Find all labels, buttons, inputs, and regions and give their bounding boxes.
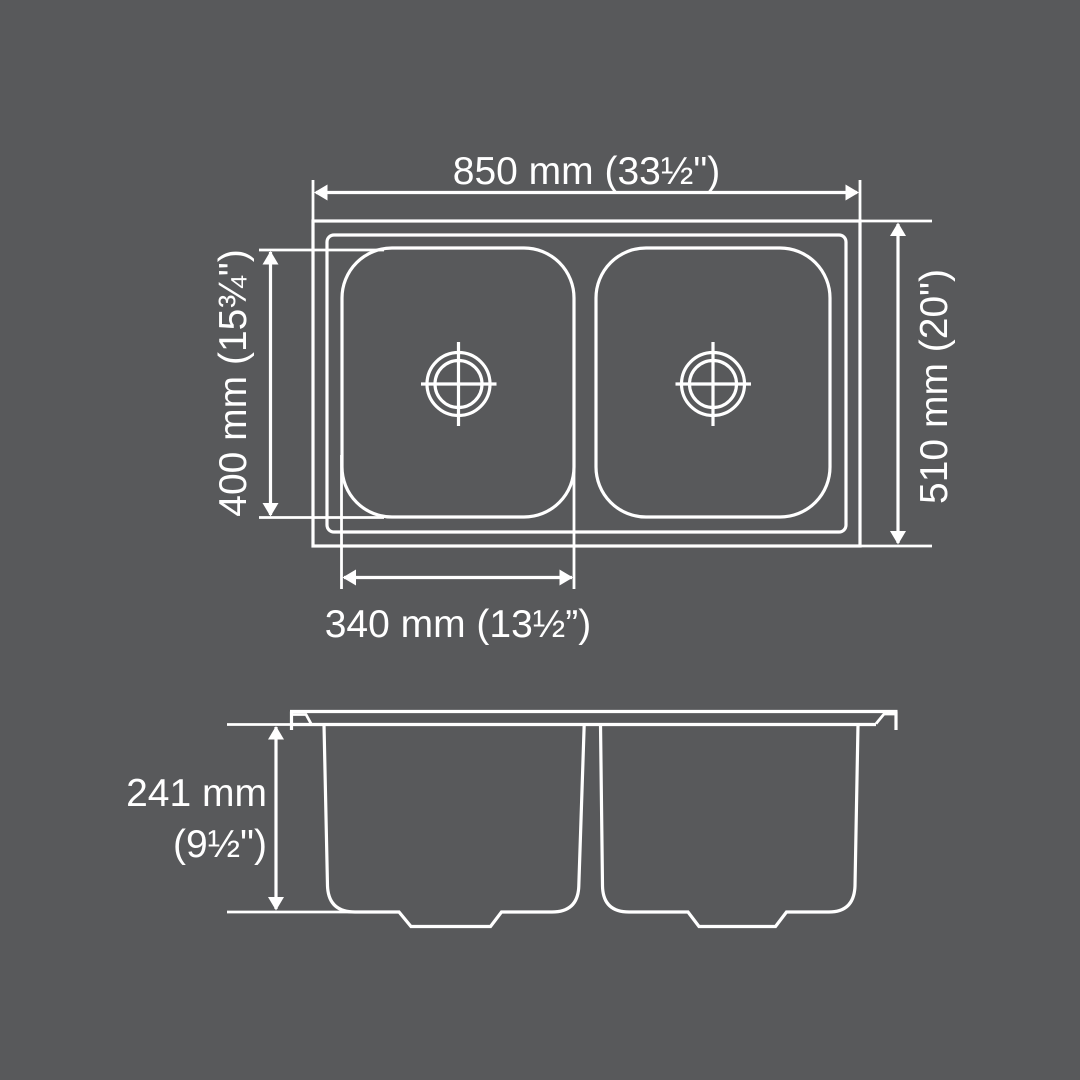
svg-text:400 mm (15¾"): 400 mm (15¾") — [212, 249, 255, 516]
svg-text:340 mm (13½”): 340 mm (13½”) — [325, 603, 592, 646]
svg-text:(9½"): (9½") — [173, 823, 267, 866]
svg-text:850 mm (33½"): 850 mm (33½") — [453, 150, 720, 193]
svg-text:510 mm (20"): 510 mm (20") — [913, 269, 956, 504]
svg-text:241 mm: 241 mm — [126, 772, 267, 815]
